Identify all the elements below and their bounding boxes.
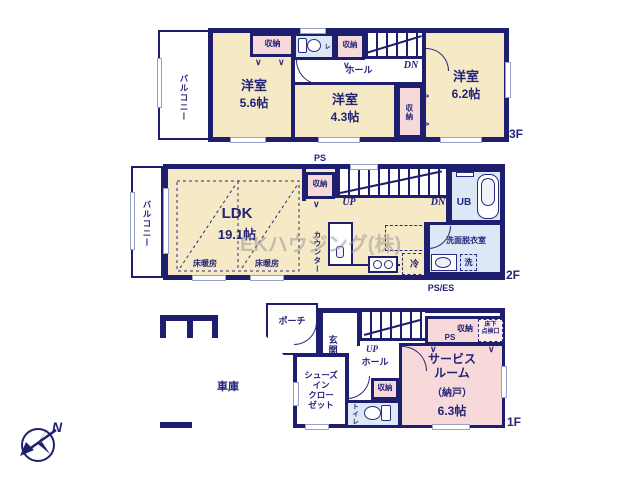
ps-top-label: PS [438,333,462,342]
closet-3f-a-door-chevron2: ∨ [278,58,285,67]
window-1f-closet-left [293,382,299,406]
window-2f-balcony-left [130,192,135,250]
garage-wall-bottom [160,422,192,428]
shoes-closet-label: シューズ イン クロー ゼット [297,370,345,410]
bathtub-inner-icon [481,178,495,206]
compass-n-label: N [52,419,63,435]
ub-vent-icon [456,172,474,177]
toilet-bowl-icon-1f [364,406,381,420]
room43-name: 洋室 [314,92,376,107]
room56-size: 5.6帖 [224,96,284,110]
room43-size: 4.3帖 [314,110,376,124]
compass-icon: N [12,414,66,470]
balcony-2f-label: バルコニー [142,182,152,266]
wall-1f-entrance-right [357,312,360,346]
up-2f-label: UP [336,197,362,209]
window-1f-service-bottom [432,424,470,430]
floor2-tag: 2F [506,268,520,282]
service-room-size: 6.3帖 [420,404,484,418]
kitchen-faucet-icon [336,246,344,258]
kitchen-cabinet-box [385,225,427,251]
closet-3f-b-label: 収納 [335,41,365,50]
up-1f-label: UP [360,344,384,355]
toilet-bowl-icon-3f [307,39,321,52]
window-3f-room62-right [505,62,511,98]
room62-size: 6.2帖 [435,87,497,101]
window-2f-ldk-bottom2 [250,275,284,281]
toilet-tank-icon-1f [381,405,391,421]
room62-closet-chevron2: > [424,120,429,129]
stove-icon [368,256,398,273]
floor3-tag: 3F [509,127,523,141]
window-3f-top [300,28,326,34]
window-1f-closet-bottom [305,424,329,430]
underfloor-hatch-label: 床下 点検口 [478,322,503,336]
balcony-3f-label: バルコニー [179,57,189,139]
ldk-size: 19.1帖 [204,227,270,242]
closet-2f-label: 収納 [305,180,335,189]
wall-3f-room56-right [291,33,295,137]
garage-wall-stub-left [160,315,166,338]
wall-2f-ldk-right [302,169,306,201]
closet-3f-a-label: 収納 [250,39,295,48]
hall-1f-label: ホール [352,357,398,368]
dn-2f-label: DN [425,197,451,209]
garage-wall-stub-mid [187,315,193,338]
washbasin-bowl-icon [435,257,451,268]
dn-3f-label: DN [396,60,426,72]
ub-label: UB [450,197,478,209]
kitchen-sink-icon [328,222,353,266]
ldk-name: LDK [206,205,268,223]
closet-3f-a-door-chevrons: ∨ [255,58,262,67]
floorheating2-label: 床暖房 [248,259,286,268]
service-room-alt: （納戸） [420,388,484,400]
closet-3f-c-label: 収納 [404,96,413,128]
room62-closet-chevron1: > [424,92,429,101]
ps-es-label: PS/ES [418,283,464,294]
window-2f-ldk-bottom1 [192,275,226,281]
closet-1f-label: 収納 [371,384,399,393]
floorheating1-label: 床暖房 [186,259,224,268]
closet-2f-chevron: ∨ [313,200,320,209]
service-room-name: サービス ルーム [420,352,484,380]
garage-label: 車庫 [204,381,252,394]
toilet-1f-label: トイレ [350,403,358,426]
floor1-tag: 1F [507,415,521,429]
window-2f-ldk-left [163,188,169,254]
counter-label: カウンター [312,224,321,280]
stove-burner-icon [373,260,382,269]
washer-label: 洗 [460,258,477,267]
service-closet-chevron1: ∨ [430,345,437,354]
toilet-icon-3f [298,38,307,53]
window-3f-balcony-left [157,58,162,108]
wall-2f-ub-left [446,169,449,223]
floorplan-page: バルコニー トイレ 収納 ∨ ∨ 収納 ∨ 収納 > > DN [0,0,640,480]
entrance-label: 玄関 [327,331,338,359]
window-3f-room43-bottom [318,137,360,143]
ps-2f-label: PS [306,153,334,164]
stove-burner-icon [384,260,393,269]
window-1f-service-right [501,366,507,398]
wall-2f-washroom-left [424,222,427,275]
room56-name: 洋室 [224,78,284,93]
garage-wall-stub-right [212,315,218,338]
window-3f-room62-bottom [440,137,482,143]
service-closet-chevron2: ∨ [488,345,495,354]
window-3f-room56-bottom [230,137,266,143]
window-2f-top [350,164,378,170]
room62-name: 洋室 [435,69,497,84]
hall-3f-label: ホール [336,65,382,76]
